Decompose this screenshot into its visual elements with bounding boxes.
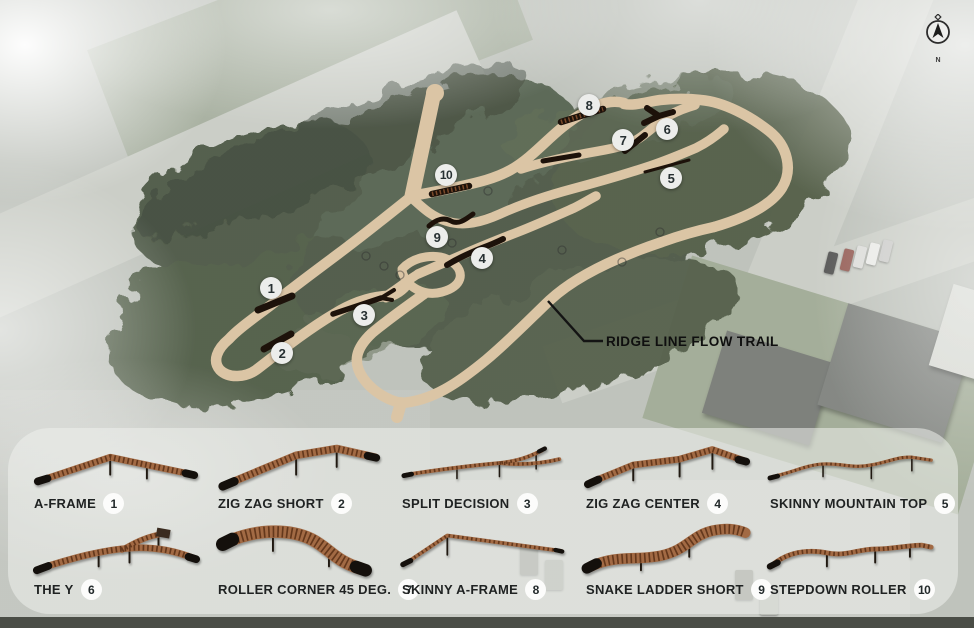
legend-number-badge: 4 <box>707 493 728 514</box>
legend-number-badge: 8 <box>525 579 546 600</box>
legend-label: SNAKE LADDER SHORT <box>586 582 744 597</box>
legend-panel: A-FRAME1 ZIG ZAG SHORT2 SPLIT DECISION3 <box>8 428 958 614</box>
marker-number: 9 <box>434 230 441 245</box>
marker-number: 5 <box>668 171 675 186</box>
legend-item-zig-zag-center: ZIG ZAG CENTER4 <box>580 436 758 522</box>
legend-item-the-y: THE Y6 <box>28 522 206 608</box>
legend-item-skinny-mountain-top: SKINNY MOUNTAIN TOP5 <box>764 436 942 522</box>
zig-zag-center-image <box>580 436 756 492</box>
trail-marker-1: 1 <box>260 277 282 299</box>
marker-number: 3 <box>361 308 368 323</box>
stepdown-roller-image <box>764 522 940 578</box>
snake-ladder-short-image <box>580 522 756 578</box>
legend-number-badge: 10 <box>914 579 935 600</box>
the-y-image <box>28 522 204 578</box>
marker-number: 7 <box>620 133 627 148</box>
trail-marker-4: 4 <box>471 247 493 269</box>
legend-item-skinny-a-frame: SKINNY A-FRAME8 <box>396 522 574 608</box>
legend-number-badge: 3 <box>517 493 538 514</box>
marker-number: 2 <box>279 346 286 361</box>
legend-label: ZIG ZAG CENTER <box>586 496 700 511</box>
legend-number-badge: 1 <box>103 493 124 514</box>
trail-marker-7: 7 <box>612 129 634 151</box>
skinny-a-frame-image <box>396 522 572 578</box>
trail-marker-6: 6 <box>656 118 678 140</box>
marker-number: 10 <box>440 168 452 182</box>
legend-number-badge: 5 <box>934 493 955 514</box>
legend-label: A-FRAME <box>34 496 96 511</box>
legend-number-badge: 2 <box>331 493 352 514</box>
trail-map-page: { "map": { "title_label": "RIDGE LINE FL… <box>0 0 974 628</box>
north-compass-icon: N <box>920 14 956 64</box>
legend-label: SPLIT DECISION <box>402 496 510 511</box>
marker-number: 4 <box>479 251 486 266</box>
trail-marker-8: 8 <box>578 94 600 116</box>
trail-marker-3: 3 <box>353 304 375 326</box>
ridge-line-flow-trail-label: RIDGE LINE FLOW TRAIL <box>606 334 779 349</box>
compass-north-label: N <box>920 59 956 63</box>
trail-marker-2: 2 <box>271 342 293 364</box>
legend-label: ROLLER CORNER 45 DEG. <box>218 582 391 597</box>
legend-number-badge: 6 <box>81 579 102 600</box>
bottom-road-strip <box>0 617 974 628</box>
legend-item-a-frame: A-FRAME1 <box>28 436 206 522</box>
trail-marker-10: 10 <box>435 164 457 186</box>
marker-number: 8 <box>586 98 593 113</box>
legend-item-roller-corner-45: ROLLER CORNER 45 DEG.7 <box>212 522 390 608</box>
marker-number: 6 <box>664 122 671 137</box>
zig-zag-short-image <box>212 436 388 492</box>
compass-graphic <box>920 14 956 54</box>
trail-marker-5: 5 <box>660 167 682 189</box>
legend-label: SKINNY A-FRAME <box>402 582 518 597</box>
legend-item-stepdown-roller: STEPDOWN ROLLER10 <box>764 522 942 608</box>
roller-corner-45-image <box>212 522 388 578</box>
legend-item-snake-ladder-short: SNAKE LADDER SHORT9 <box>580 522 758 608</box>
legend-label: THE Y <box>34 582 74 597</box>
marker-number: 1 <box>268 281 275 296</box>
legend-label: SKINNY MOUNTAIN TOP <box>770 496 927 511</box>
split-decision-image <box>396 436 572 492</box>
legend-label: STEPDOWN ROLLER <box>770 582 907 597</box>
a-frame-image <box>28 436 204 492</box>
skinny-mountain-top-image <box>764 436 940 492</box>
legend-item-zig-zag-short: ZIG ZAG SHORT2 <box>212 436 390 522</box>
legend-label: ZIG ZAG SHORT <box>218 496 324 511</box>
legend-item-split-decision: SPLIT DECISION3 <box>396 436 574 522</box>
trail-marker-9: 9 <box>426 226 448 248</box>
